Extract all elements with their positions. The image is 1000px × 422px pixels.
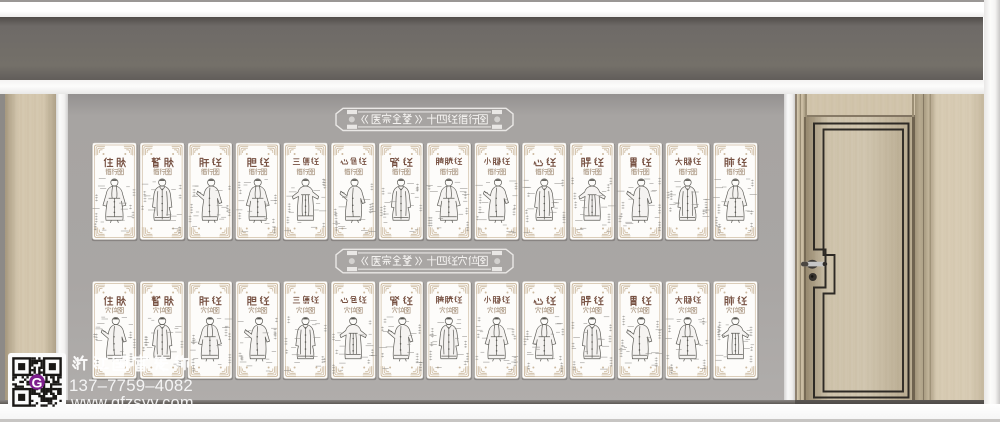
svg-text:www.qfzsyy.com: www.qfzsyy.com xyxy=(70,394,194,412)
svg-text:G: G xyxy=(32,375,43,391)
svg-text:137–7759–4082: 137–7759–4082 xyxy=(69,376,193,395)
